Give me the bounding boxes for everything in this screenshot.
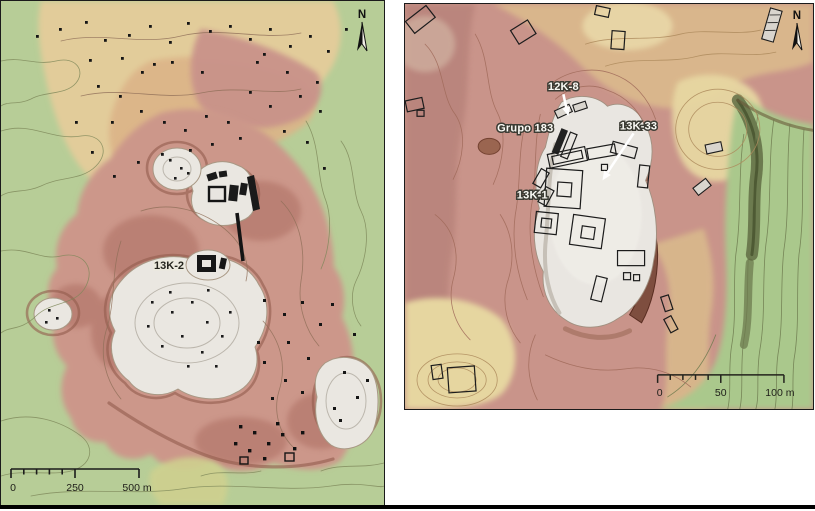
detail-map-canvas: 12K-8 Grupo 183 13K-33 13K-1 N 0 50 100 … bbox=[405, 4, 813, 409]
site-label-13k2: 13K-2 bbox=[154, 260, 184, 272]
scale-end: 500 m bbox=[122, 482, 151, 494]
aguada-depression bbox=[478, 138, 500, 154]
label-13k1: 13K-1 bbox=[517, 189, 548, 201]
scale-mid: 50 bbox=[715, 387, 727, 399]
figure-bottom-rule bbox=[0, 505, 815, 509]
lidar-map-figure: 13K-2 N 0 250 bbox=[0, 0, 815, 511]
scale-start: 0 bbox=[657, 387, 663, 399]
scale-mid: 250 bbox=[66, 482, 84, 494]
scale-start: 0 bbox=[10, 482, 16, 494]
north-label: N bbox=[793, 10, 801, 22]
scale-end: 100 m bbox=[765, 387, 794, 399]
label-12k8: 12K-8 bbox=[548, 81, 579, 93]
overview-map-canvas: 13K-2 N 0 250 bbox=[1, 1, 384, 505]
north-label: N bbox=[358, 9, 366, 21]
label-13k33: 13K-33 bbox=[620, 120, 657, 132]
label-grupo-183: Grupo 183 bbox=[497, 122, 553, 134]
detail-map-panel: 12K-8 Grupo 183 13K-33 13K-1 N 0 50 100 … bbox=[404, 3, 814, 410]
overview-map-panel: 13K-2 N 0 250 bbox=[0, 0, 385, 506]
